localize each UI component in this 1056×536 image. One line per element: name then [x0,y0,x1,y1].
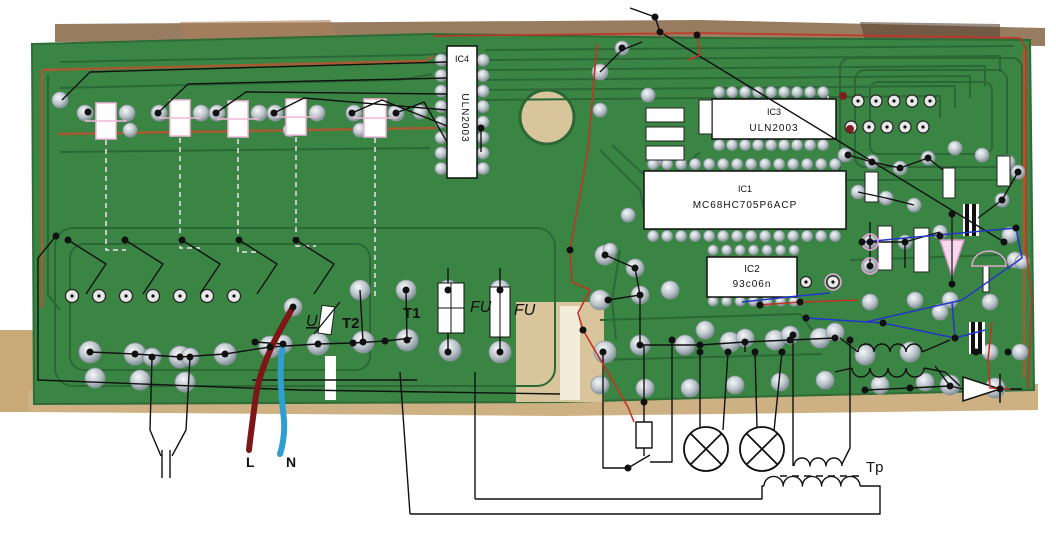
ic3-part-label: ULN2003 [749,123,798,134]
t1-label: T1 [403,305,421,322]
fuse-1-label: FU [470,299,492,316]
ic4-ref-label: IC4 [455,54,469,64]
annotated-pcb-photo: IC4 ULN2003 IC3 ULN2003 IC1 MC68HC705P6A… [0,0,1056,536]
ic1-ref-label: IC1 [738,184,752,194]
ic2-ref-label: IC2 [744,264,760,275]
tp-label: Tp [866,459,884,476]
pcb-canvas: IC4 ULN2003 IC3 ULN2003 IC1 MC68HC705P6A… [0,0,1056,536]
t2-label: T2 [342,315,360,332]
ic1-part-label: MC68HC705P6ACP [693,200,798,211]
board-hole [520,90,574,144]
neutral-wire [280,345,284,454]
ic4-part-label: ULN2003 [459,93,470,142]
ic3-ref-label: IC3 [767,107,781,117]
ic2-part-label: 93c06n [733,279,772,290]
varistor-label: U [306,313,318,330]
fuse-2-label: FU [514,302,536,319]
fuse-2-symbol [490,287,510,337]
ic2-body [707,257,797,297]
neutral-label: N [286,454,296,470]
live-label: L [246,454,255,470]
